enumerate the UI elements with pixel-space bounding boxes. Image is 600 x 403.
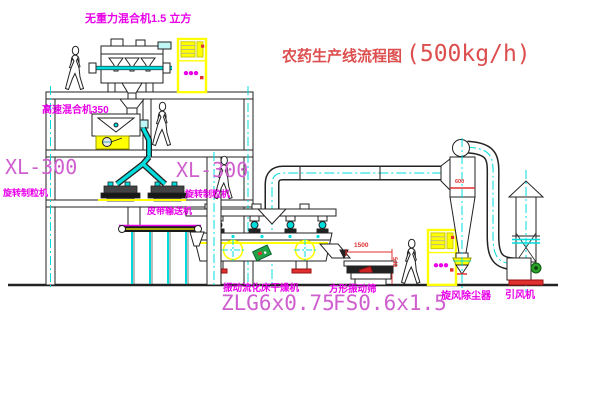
title-text: 农药生产线流程图: [282, 50, 402, 65]
label-gravity-mixer: 无重力混合机1.5 立方: [85, 14, 191, 25]
vibrating-screen-drawing: [344, 249, 396, 285]
label-granulator-right-name: 旋转制粒机: [185, 190, 230, 199]
zero-gravity-mixer-drawing: [89, 39, 172, 99]
label-high-speed-mixer: 高速混合机350: [42, 106, 109, 116]
belt-conveyor-drawing: [119, 207, 202, 284]
dimension-screen-height: 540: [391, 257, 397, 267]
y-splitter-chute: [117, 157, 165, 184]
diagram-title: 农药生产线流程图 (500kg/h): [282, 43, 531, 66]
title-capacity: (500kg/h): [406, 43, 531, 66]
flow-diagram-canvas: 农药生产线流程图 (500kg/h) 无重力混合机1.5 立方 高速混合机350…: [0, 0, 600, 403]
induced-draft-fan-drawing: [507, 170, 543, 292]
label-granulator-right-model: XL-300: [176, 160, 248, 180]
label-belt-conveyor: 皮带输送机: [147, 207, 192, 216]
label-dryer-model: ZLG6x0.75: [221, 293, 335, 314]
control-cabinet-1: [178, 39, 206, 92]
label-cyclone: 旋风除尘器: [441, 292, 491, 302]
person-figure-ground: [402, 239, 420, 283]
person-figure-roof: [66, 46, 84, 89]
label-fan: 引风机: [505, 291, 535, 301]
label-granulator-left-name: 旋转制粒机: [3, 189, 48, 198]
label-screen-model: FS0.6x1.5: [333, 293, 447, 314]
control-cabinet-2: [428, 230, 456, 285]
rotary-granulator-right: [148, 182, 187, 201]
dimension-screen-length: 1500: [354, 243, 368, 250]
label-granulator-left-model: XL-300: [5, 157, 77, 177]
person-figure-floor2: [153, 102, 171, 145]
dimension-cyclone-diameter: 600: [455, 180, 464, 186]
